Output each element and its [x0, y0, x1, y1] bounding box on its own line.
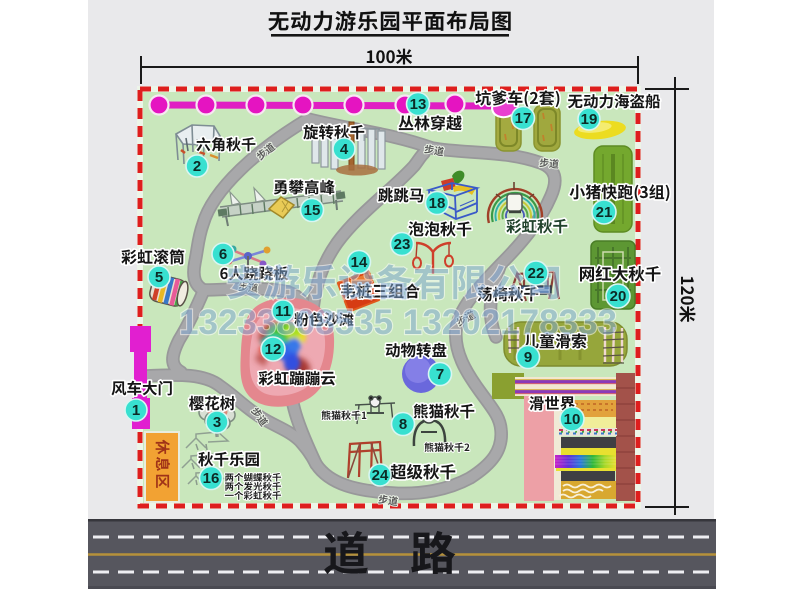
- svg-text:19: 19: [581, 111, 598, 128]
- svg-text:6: 6: [219, 246, 227, 263]
- svg-text:18: 18: [429, 195, 446, 212]
- svg-text:20: 20: [610, 288, 627, 305]
- svg-text:1: 1: [132, 402, 140, 419]
- svg-text:12: 12: [265, 341, 282, 358]
- svg-text:11: 11: [275, 303, 291, 320]
- svg-text:15: 15: [304, 202, 321, 219]
- svg-text:17: 17: [515, 110, 532, 127]
- svg-text:23: 23: [394, 236, 411, 253]
- svg-text:10: 10: [564, 411, 581, 428]
- svg-text:14: 14: [351, 254, 368, 271]
- svg-text:16: 16: [203, 470, 220, 487]
- svg-text:8: 8: [399, 416, 407, 433]
- svg-text:9: 9: [524, 349, 532, 366]
- svg-text:4: 4: [340, 141, 349, 158]
- svg-text:2: 2: [193, 158, 201, 175]
- svg-text:24: 24: [372, 467, 389, 484]
- svg-text:22: 22: [528, 265, 545, 282]
- svg-text:5: 5: [155, 269, 163, 286]
- svg-text:21: 21: [596, 204, 613, 221]
- svg-text:13: 13: [410, 96, 427, 113]
- svg-text:13233808535 13202178333: 13233808535 13202178333: [179, 303, 617, 342]
- svg-text:7: 7: [436, 366, 444, 383]
- svg-text:3: 3: [213, 414, 221, 431]
